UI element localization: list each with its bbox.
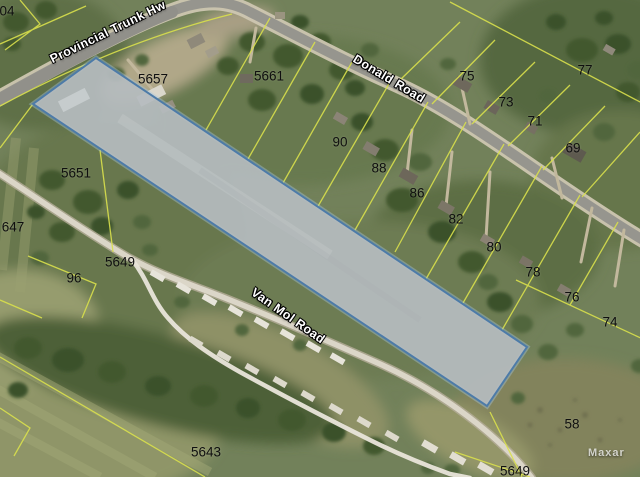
map-viewport[interactable]: 0456575661757773716990885651868264780564… — [0, 0, 640, 477]
imagery-watermark: Maxar — [588, 448, 625, 459]
aerial-imagery — [0, 0, 640, 477]
